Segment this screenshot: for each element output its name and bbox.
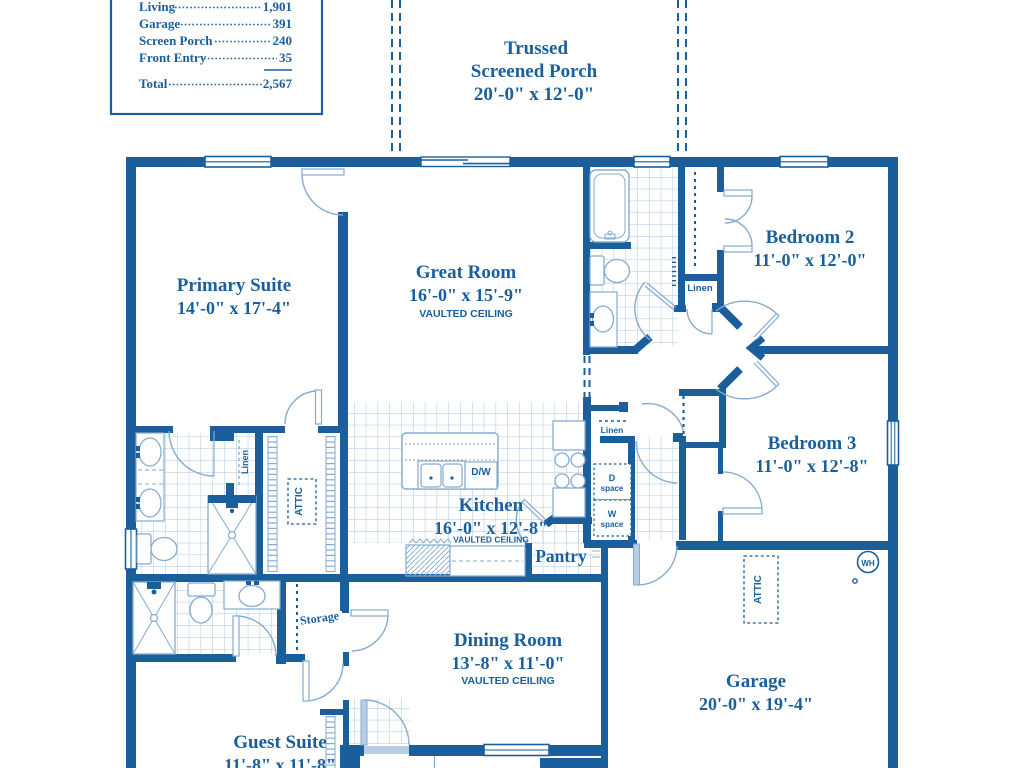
svg-text:Trussed: Trussed xyxy=(504,38,568,59)
svg-text:Linen: Linen xyxy=(687,283,713,294)
svg-text:ATTIC: ATTIC xyxy=(753,575,764,604)
svg-text:Screen Porch: Screen Porch xyxy=(139,33,213,48)
svg-text:20'-0" x 12'-0": 20'-0" x 12'-0" xyxy=(474,84,594,105)
svg-text:1,901: 1,901 xyxy=(263,0,292,14)
svg-text:Garage: Garage xyxy=(139,16,180,31)
svg-text:Living: Living xyxy=(139,0,176,14)
svg-text:space: space xyxy=(601,484,624,493)
svg-text:Great Room: Great Room xyxy=(416,262,517,283)
svg-text:Front Entry: Front Entry xyxy=(139,50,207,65)
svg-text:Linen: Linen xyxy=(240,450,250,474)
svg-text:20'-0" x 19'-4": 20'-0" x 19'-4" xyxy=(699,694,813,714)
svg-text:11'-8" x 11'-8": 11'-8" x 11'-8" xyxy=(224,755,336,768)
svg-text:Garage: Garage xyxy=(726,671,786,692)
svg-text:240: 240 xyxy=(273,33,293,48)
svg-text:W: W xyxy=(608,509,617,519)
svg-text:VAULTED CEILING: VAULTED CEILING xyxy=(419,308,513,320)
svg-text:Bedroom 2: Bedroom 2 xyxy=(766,227,855,248)
svg-text:35: 35 xyxy=(279,50,293,65)
svg-text:WH: WH xyxy=(861,559,875,568)
svg-text:D: D xyxy=(609,473,616,483)
svg-text:Dining Room: Dining Room xyxy=(454,630,562,651)
svg-text:Bedroom 3: Bedroom 3 xyxy=(768,433,857,454)
svg-text:11'-0" x 12'-8": 11'-0" x 12'-8" xyxy=(756,456,869,476)
svg-text:ATTIC: ATTIC xyxy=(294,487,305,516)
svg-text:VAULTED CEILING: VAULTED CEILING xyxy=(461,675,555,687)
svg-text:Total: Total xyxy=(139,76,168,91)
svg-text:2,567: 2,567 xyxy=(263,76,293,91)
svg-text:11'-0" x 12'-0": 11'-0" x 12'-0" xyxy=(754,250,867,270)
svg-text:Pantry: Pantry xyxy=(535,546,587,566)
svg-text:Primary Suite: Primary Suite xyxy=(177,275,292,296)
svg-text:D/W: D/W xyxy=(471,467,491,478)
svg-text:14'-0" x 17'-4": 14'-0" x 17'-4" xyxy=(177,298,291,318)
svg-text:13'-8" x 11'-0": 13'-8" x 11'-0" xyxy=(452,653,565,673)
svg-text:space: space xyxy=(601,520,624,529)
svg-text:Kitchen: Kitchen xyxy=(459,495,524,516)
svg-text:VAULTED CEILING: VAULTED CEILING xyxy=(453,535,529,545)
svg-text:16'-0" x 15'-9": 16'-0" x 15'-9" xyxy=(409,285,523,305)
svg-text:Linen: Linen xyxy=(601,425,624,435)
svg-text:Screened Porch: Screened Porch xyxy=(471,61,598,82)
svg-text:Guest Suite: Guest Suite xyxy=(233,732,326,753)
svg-text:391: 391 xyxy=(273,16,293,31)
